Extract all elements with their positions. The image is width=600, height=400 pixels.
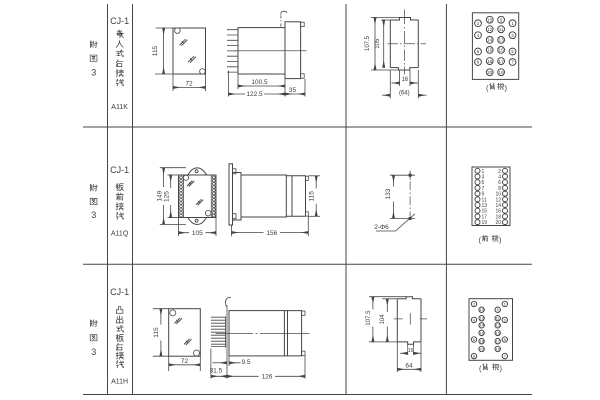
svg-text:A11H: A11H bbox=[111, 379, 128, 386]
svg-text:8: 8 bbox=[477, 60, 480, 65]
svg-text:13: 13 bbox=[499, 38, 505, 43]
svg-text:107.5: 107.5 bbox=[365, 35, 371, 51]
svg-text:2: 2 bbox=[473, 301, 475, 306]
svg-text:12: 12 bbox=[479, 316, 483, 321]
svg-text:72: 72 bbox=[181, 358, 189, 365]
svg-text:A11Q: A11Q bbox=[111, 231, 129, 238]
svg-text:3: 3 bbox=[91, 347, 96, 357]
svg-text:3: 3 bbox=[91, 210, 96, 220]
svg-text:15: 15 bbox=[499, 48, 505, 53]
svg-text:19: 19 bbox=[482, 220, 488, 226]
svg-text:19: 19 bbox=[499, 70, 505, 75]
svg-text:20: 20 bbox=[487, 70, 493, 75]
svg-text:5: 5 bbox=[504, 337, 506, 342]
svg-text:125: 125 bbox=[164, 191, 171, 202]
svg-text:CJ-1: CJ-1 bbox=[110, 287, 129, 297]
svg-text:15: 15 bbox=[496, 330, 500, 335]
svg-text:1: 1 bbox=[511, 21, 514, 26]
svg-text:6: 6 bbox=[477, 49, 480, 54]
svg-text:8: 8 bbox=[473, 354, 475, 359]
svg-text:115: 115 bbox=[309, 191, 316, 202]
svg-text:19: 19 bbox=[496, 346, 500, 351]
svg-text:11: 11 bbox=[499, 27, 504, 32]
svg-text:17: 17 bbox=[499, 59, 505, 64]
svg-text:3: 3 bbox=[504, 317, 506, 322]
svg-text:2-Φ6: 2-Φ6 bbox=[374, 224, 389, 231]
svg-text:16: 16 bbox=[401, 77, 408, 83]
svg-text:6: 6 bbox=[473, 337, 475, 342]
svg-text:1: 1 bbox=[504, 301, 506, 306]
svg-text:31.5: 31.5 bbox=[210, 367, 223, 374]
svg-text:126: 126 bbox=[262, 374, 273, 381]
svg-text:104: 104 bbox=[380, 314, 386, 325]
svg-text:2: 2 bbox=[477, 21, 480, 26]
svg-text:12: 12 bbox=[487, 27, 493, 32]
svg-text:16: 16 bbox=[408, 348, 414, 354]
svg-text:14: 14 bbox=[487, 38, 493, 43]
svg-text:100.5: 100.5 bbox=[251, 79, 268, 86]
svg-text:133: 133 bbox=[385, 188, 392, 199]
svg-text:9: 9 bbox=[497, 307, 499, 312]
svg-text:A11K: A11K bbox=[111, 104, 128, 111]
svg-text:16: 16 bbox=[479, 330, 483, 335]
svg-text:156: 156 bbox=[266, 230, 277, 237]
svg-text:5: 5 bbox=[511, 49, 514, 54]
svg-text:18: 18 bbox=[487, 59, 493, 64]
svg-text:122.5: 122.5 bbox=[246, 91, 263, 98]
svg-text:105: 105 bbox=[375, 38, 381, 49]
svg-text:72: 72 bbox=[185, 81, 193, 88]
svg-text:9: 9 bbox=[500, 17, 503, 22]
svg-text:107.5: 107.5 bbox=[366, 310, 372, 326]
svg-text:7: 7 bbox=[504, 354, 506, 359]
svg-text:17: 17 bbox=[496, 339, 500, 344]
svg-text:CJ-1: CJ-1 bbox=[110, 165, 129, 175]
svg-text:11: 11 bbox=[496, 316, 500, 321]
svg-text:4: 4 bbox=[477, 33, 480, 38]
svg-text:64: 64 bbox=[405, 362, 413, 369]
svg-text:3: 3 bbox=[91, 68, 96, 78]
svg-text:13: 13 bbox=[496, 323, 500, 328]
svg-text:16: 16 bbox=[487, 48, 493, 53]
svg-text:20: 20 bbox=[495, 220, 501, 226]
svg-text:3: 3 bbox=[511, 33, 514, 38]
svg-text:115: 115 bbox=[152, 45, 159, 56]
svg-text:115: 115 bbox=[153, 327, 160, 338]
svg-text:10: 10 bbox=[487, 17, 493, 22]
svg-text:105: 105 bbox=[192, 230, 203, 237]
svg-text:CJ-1: CJ-1 bbox=[110, 16, 129, 26]
svg-text:35: 35 bbox=[289, 87, 297, 94]
svg-text:18: 18 bbox=[479, 339, 483, 344]
svg-text:9.5: 9.5 bbox=[241, 359, 250, 366]
svg-text:(64): (64) bbox=[399, 91, 410, 97]
svg-text:7: 7 bbox=[511, 60, 514, 65]
